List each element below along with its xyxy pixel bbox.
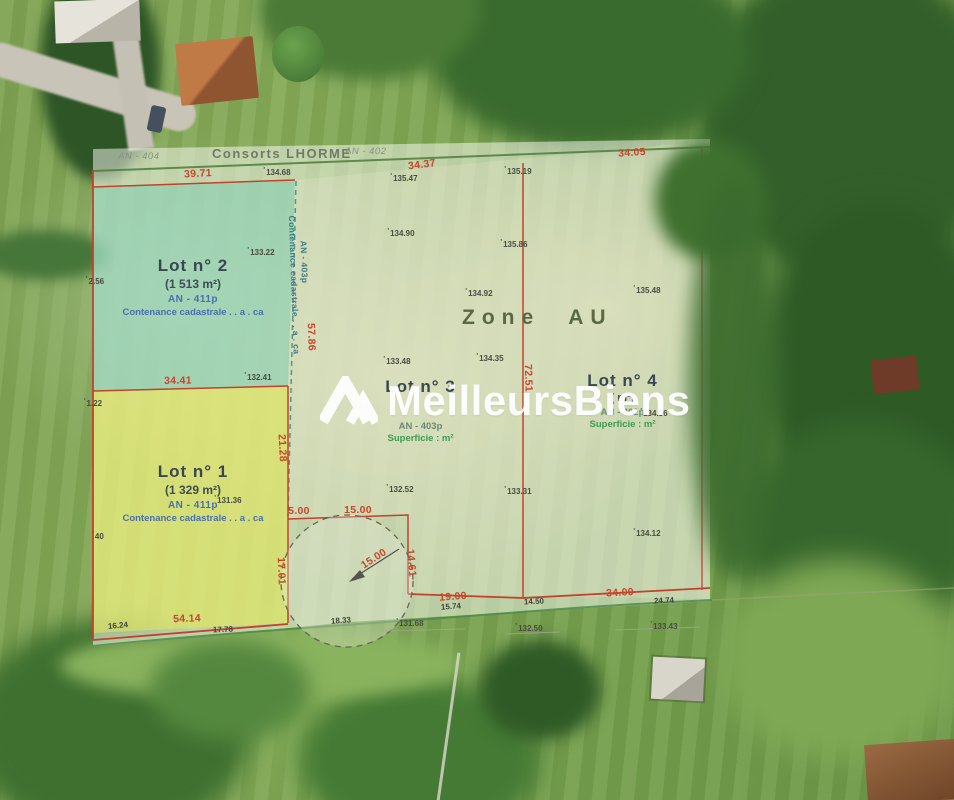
spot-132-52: 132.52 [386, 484, 413, 494]
dim-39-71: 39.71 [184, 168, 212, 180]
spot-132-41: 132.41 [244, 372, 271, 382]
spot-135-48: 135.48 [633, 285, 660, 295]
spot-135-19: 135.19 [504, 166, 531, 176]
spot-135-47: 135.47 [390, 173, 417, 183]
dim-34-37: 34.37 [408, 158, 437, 172]
dim-34-05: 34.05 [618, 147, 646, 159]
dim-17-01: 17.01 [275, 557, 286, 585]
dim-14-61: 14.61 [405, 549, 418, 578]
watermark-brand: MeilleursBiens [387, 380, 690, 422]
seg-16-24: 16.24 [108, 621, 129, 631]
spot-134-90: 134.90 [387, 228, 414, 238]
dim-34-00: 34.00 [606, 587, 634, 599]
spot-131-68: 131.68 [396, 618, 423, 628]
dim-57-86: 57.86 [305, 323, 316, 351]
spot-134-12: 134.12 [633, 528, 660, 538]
seg-18-33: 18.33 [331, 616, 352, 625]
spot-133-48: 133.48 [383, 356, 410, 366]
spot-134-35: 134.35 [476, 353, 503, 363]
spot-134-92: 134.92 [465, 288, 492, 298]
dim-54-14: 54.14 [173, 613, 201, 624]
spot-133-22: 133.22 [247, 247, 274, 257]
seg-15-74: 15.74 [441, 602, 462, 611]
spot-133-43: 133.43 [650, 621, 677, 631]
boundary-parcel-note: Contenance cadastrale . . a . ca [287, 215, 300, 354]
house-chevron-icon [320, 376, 378, 426]
dim-5-00: 5.00 [288, 506, 310, 517]
spot-1-22: 1.22 [84, 398, 102, 408]
dim-radius-15-00: 15.00 [359, 547, 388, 571]
spot-131-36: 131.36 [214, 495, 241, 505]
spot-40: 40 [92, 531, 104, 541]
seg-17-78: 17.78 [213, 626, 233, 635]
dim-21-28: 21.28 [276, 434, 288, 462]
spot-132-50: 132.50 [515, 623, 542, 633]
dim-34-41: 34.41 [164, 376, 192, 387]
boundary-parcel-id: AN - 403p [299, 240, 309, 283]
spot-2-56: 2.56 [86, 276, 104, 286]
spot-135-86: 135.86 [500, 239, 527, 249]
spot-133-31: 133.31 [504, 486, 531, 496]
aerial-cadastral-view: AN - 404 Consorts LHORME AN - 402 Zone A… [0, 0, 954, 800]
spot-134-68: 134.68 [263, 167, 290, 177]
tree-canopy-overhang-right [690, 180, 780, 580]
seg-14-50: 14.50 [524, 597, 544, 606]
seg-24-74: 24.74 [654, 596, 674, 605]
dim-15-00: 15.00 [344, 505, 372, 516]
watermark: MeilleursBiens [320, 376, 690, 426]
